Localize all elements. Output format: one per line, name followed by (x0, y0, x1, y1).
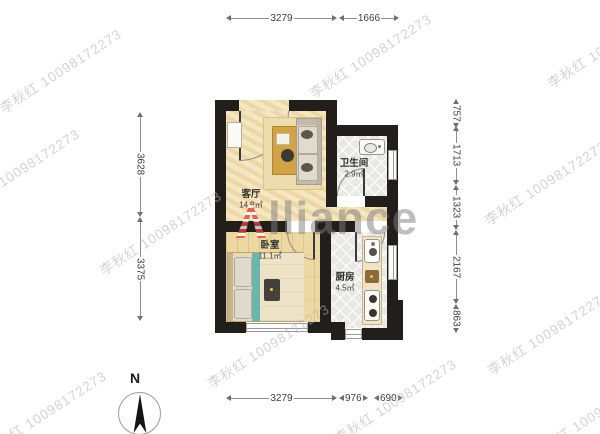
pillow (234, 289, 252, 319)
basin (364, 143, 377, 153)
watermark-text: 李秋红 10098172273 (527, 368, 600, 434)
bedroom-window (246, 323, 308, 332)
dimension-right-1: 757 (449, 99, 463, 126)
pillow (234, 257, 252, 287)
sofa-armrest (297, 119, 316, 125)
dimension-value: 757 (451, 104, 462, 123)
dimension-value: 863 (451, 309, 462, 328)
kitchen-sink (364, 239, 380, 263)
wall (326, 100, 337, 207)
wall (215, 100, 226, 333)
arrow-right-icon (394, 15, 399, 21)
wall-step (387, 300, 403, 340)
sofa-pillow (301, 130, 313, 139)
dimension-bottom-2: 976 (339, 392, 373, 404)
washbasin (359, 139, 385, 155)
watermark-text: 李秋红 10098172273 (483, 285, 600, 379)
dimension-right-2: 1713 (449, 126, 463, 185)
kitchen-window (345, 329, 362, 339)
dimension-right-4: 2167 (449, 230, 463, 304)
cutting-board (365, 270, 379, 283)
wall (215, 322, 246, 333)
dimension-value: 1323 (451, 195, 462, 219)
dot (370, 275, 373, 278)
watermark-text: 李秋红 10098172273 (0, 123, 83, 217)
burner (369, 309, 377, 317)
dimension-value: 3375 (135, 257, 146, 281)
watermark-text: 李秋红 10098172273 (95, 185, 225, 279)
kitchen-side-window (388, 245, 397, 280)
arrow-down-icon (453, 328, 459, 333)
kitchen-label: 厨房 (335, 269, 354, 283)
dimension-top-2: 1666 (339, 12, 399, 24)
sink-basin (369, 248, 377, 256)
floorplan-screenshot: 李秋红 10098172273李秋红 10098172273李秋红 100981… (0, 0, 600, 434)
dimension-bottom-3: 690 (374, 392, 401, 404)
bed-runner (252, 253, 260, 321)
watermark-text: 李秋红 10098172273 (0, 23, 125, 117)
living-room-area: 14.2㎡ (239, 200, 263, 211)
dimension-right-3: 1323 (449, 185, 463, 230)
wall (331, 328, 345, 340)
dimension-value: 690 (379, 393, 398, 404)
stove (364, 290, 380, 321)
bed-headboard (228, 253, 233, 321)
arrow-right-icon (332, 395, 337, 401)
wall (320, 221, 331, 333)
plant (281, 149, 294, 162)
dimension-value: 976 (344, 393, 363, 404)
hallway-floor (326, 207, 387, 221)
dimension-value: 3628 (135, 152, 146, 176)
north-label: N (130, 370, 140, 386)
arrow-down-icon (137, 316, 143, 321)
sofa (296, 118, 322, 185)
sofa-pillow (301, 163, 313, 172)
dimension-left-1: 3628 (133, 112, 147, 217)
bathroom-area: 2.9㎡ (344, 169, 363, 180)
bedroom-label: 卧室 (260, 237, 279, 251)
dimension-value: 2167 (451, 255, 462, 279)
faucet (378, 145, 381, 148)
kitchen-area: 4.5㎡ (335, 283, 354, 294)
dot (270, 288, 273, 291)
dimension-value: 3279 (269, 393, 293, 404)
arrow-right-icon (363, 395, 368, 401)
bathroom-label: 卫生间 (340, 155, 369, 169)
tray (276, 133, 290, 145)
dimension-value: 3279 (269, 13, 293, 24)
watermark-text: 李秋红 10098172273 (0, 365, 110, 434)
dimension-bottom-1: 3279 (226, 392, 337, 404)
dimension-right-5: 863 (449, 304, 463, 335)
bedroom-area: 11.1㎡ (259, 251, 282, 262)
dimension-left-2: 3375 (133, 217, 147, 321)
bed-tray (264, 279, 280, 301)
floorplan: 客厅 14.2㎡ 卫生间 2.9㎡ 卧室 11.1㎡ 厨房 4.5㎡ (215, 100, 403, 340)
arrow-right-icon (332, 15, 337, 21)
entry-threshold (239, 100, 289, 111)
faucet (371, 242, 375, 246)
living-room-label: 客厅 (241, 186, 260, 200)
bed (227, 252, 303, 322)
burner (369, 295, 377, 303)
dimension-value: 1713 (451, 143, 462, 167)
watermark-text: 李秋红 10098172273 (480, 135, 600, 229)
wall (215, 221, 287, 232)
wall (365, 196, 398, 207)
watermark-text: 李秋红 10098172273 (543, 0, 600, 92)
dimension-top-1: 3279 (226, 12, 337, 24)
bathroom-window (388, 150, 397, 180)
shoe-cabinet (227, 122, 242, 148)
arrow-right-icon (398, 395, 403, 401)
dimension-value: 1666 (357, 13, 381, 24)
